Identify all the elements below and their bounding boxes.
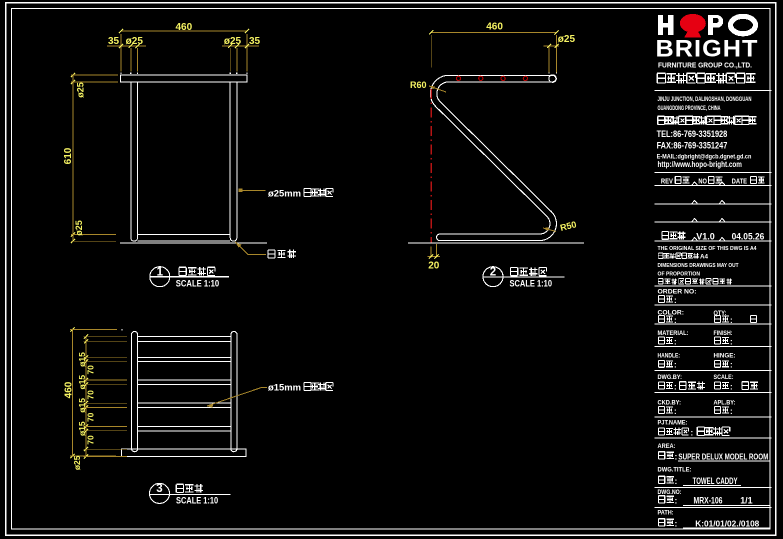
- svg-text:JINJU JUNCTION, DALINGSHAN, DO: JINJU JUNCTION, DALINGSHAN, DONGGUAN: [658, 96, 752, 103]
- svg-text:04.05.26: 04.05.26: [732, 232, 765, 242]
- svg-text::: :: [691, 428, 694, 437]
- svg-text:SUPER DELUX MODEL ROOM: SUPER DELUX MODEL ROOM: [678, 452, 768, 462]
- svg-text:460: 460: [63, 381, 74, 398]
- svg-text:70: 70: [86, 412, 96, 422]
- svg-text:460: 460: [175, 22, 192, 33]
- svg-text::: :: [675, 519, 678, 529]
- svg-text:SCALE 1:10: SCALE 1:10: [510, 278, 553, 288]
- svg-text:HINGE:: HINGE:: [714, 353, 736, 360]
- svg-text:35: 35: [249, 36, 261, 47]
- svg-text:ø15: ø15: [77, 375, 87, 390]
- svg-text:PATH:: PATH:: [658, 510, 674, 517]
- svg-text:DWG.TITLE:: DWG.TITLE:: [658, 466, 692, 473]
- svg-text:APL.BY:: APL.BY:: [714, 399, 736, 406]
- svg-text:GUANGDONG PROVINCE, CHINA: GUANGDONG PROVINCE, CHINA: [658, 105, 721, 112]
- svg-text:DIMENSIONS DRAWINGS MAY OUT: DIMENSIONS DRAWINGS MAY OUT: [658, 263, 739, 269]
- svg-text:NO: NO: [698, 177, 707, 186]
- svg-text:70: 70: [86, 365, 96, 375]
- svg-text:V1.0: V1.0: [696, 232, 715, 242]
- svg-text::: :: [730, 316, 733, 325]
- svg-text::: :: [674, 296, 677, 305]
- svg-text:70: 70: [86, 435, 96, 445]
- svg-text::: :: [674, 407, 677, 416]
- svg-text:DATE: DATE: [732, 177, 748, 186]
- svg-text:ORDER NO:: ORDER NO:: [658, 288, 697, 295]
- svg-text:ø15: ø15: [77, 421, 87, 436]
- svg-text:A4: A4: [700, 254, 709, 261]
- svg-text:70: 70: [86, 390, 96, 400]
- svg-text:BRIGHT: BRIGHT: [656, 35, 759, 62]
- svg-text::: :: [730, 407, 733, 416]
- svg-text:FAX:86-769-3351247: FAX:86-769-3351247: [657, 140, 728, 150]
- svg-text::: :: [675, 476, 678, 486]
- svg-text:ø25: ø25: [72, 455, 82, 470]
- svg-text:OF PROPORTION: OF PROPORTION: [658, 272, 701, 278]
- svg-text:1/1: 1/1: [740, 496, 752, 506]
- svg-text:ø25: ø25: [558, 34, 576, 45]
- svg-text:TEL:86-769-3351928: TEL:86-769-3351928: [657, 129, 728, 139]
- svg-text:CKD.BY:: CKD.BY:: [658, 399, 682, 406]
- svg-text:1: 1: [157, 266, 164, 278]
- svg-text:ø25: ø25: [126, 36, 144, 47]
- svg-text:SCALE 1:10: SCALE 1:10: [176, 278, 219, 288]
- svg-text:610: 610: [63, 147, 74, 164]
- svg-text::: :: [675, 496, 678, 506]
- svg-text:SCALE:: SCALE:: [714, 374, 734, 381]
- svg-text::: :: [730, 361, 733, 370]
- svg-text::: :: [674, 383, 677, 392]
- svg-text:http://www.hopo-bright.com: http://www.hopo-bright.com: [658, 160, 742, 169]
- svg-text:DWG.BY:: DWG.BY:: [658, 374, 683, 381]
- svg-text::: :: [675, 452, 678, 462]
- svg-text:2: 2: [490, 266, 496, 278]
- svg-text:THE ORIGINAL SIZE OF THIS DWG: THE ORIGINAL SIZE OF THIS DWG IS A4: [658, 246, 758, 252]
- svg-text:ø25mm: ø25mm: [268, 189, 301, 199]
- svg-text:PJT.NAME:: PJT.NAME:: [658, 419, 688, 426]
- svg-text::: :: [674, 361, 677, 370]
- svg-text:FURNITURE GROUP CO.,LTD.: FURNITURE GROUP CO.,LTD.: [658, 60, 752, 69]
- svg-text:MATERIAL:: MATERIAL:: [658, 330, 689, 337]
- svg-text:20: 20: [428, 261, 440, 272]
- svg-text:SCALE 1:10: SCALE 1:10: [176, 495, 218, 505]
- svg-text:HANDLE:: HANDLE:: [658, 353, 681, 360]
- svg-text:460: 460: [486, 22, 503, 33]
- svg-text::: :: [730, 383, 733, 392]
- svg-text::: :: [674, 337, 677, 346]
- svg-text:MRX-106: MRX-106: [694, 496, 723, 506]
- svg-text:ø25: ø25: [74, 220, 84, 236]
- svg-text::: :: [730, 337, 733, 346]
- svg-text:3: 3: [156, 483, 162, 495]
- svg-text:TOWEL CADDY: TOWEL CADDY: [693, 476, 738, 486]
- svg-text::: :: [674, 316, 677, 325]
- svg-text:R60: R60: [410, 80, 427, 90]
- svg-text:35: 35: [108, 36, 120, 47]
- svg-text:K:01/01/02./0108: K:01/01/02./0108: [695, 519, 759, 529]
- svg-text:REV: REV: [661, 177, 673, 186]
- svg-text:AREA:: AREA:: [658, 443, 676, 450]
- svg-text:ø15: ø15: [77, 352, 87, 367]
- svg-text:FINISH:: FINISH:: [714, 330, 733, 337]
- svg-text:ø15mm: ø15mm: [268, 383, 301, 393]
- svg-text:ø25: ø25: [76, 82, 86, 98]
- svg-text:ø25: ø25: [224, 36, 242, 47]
